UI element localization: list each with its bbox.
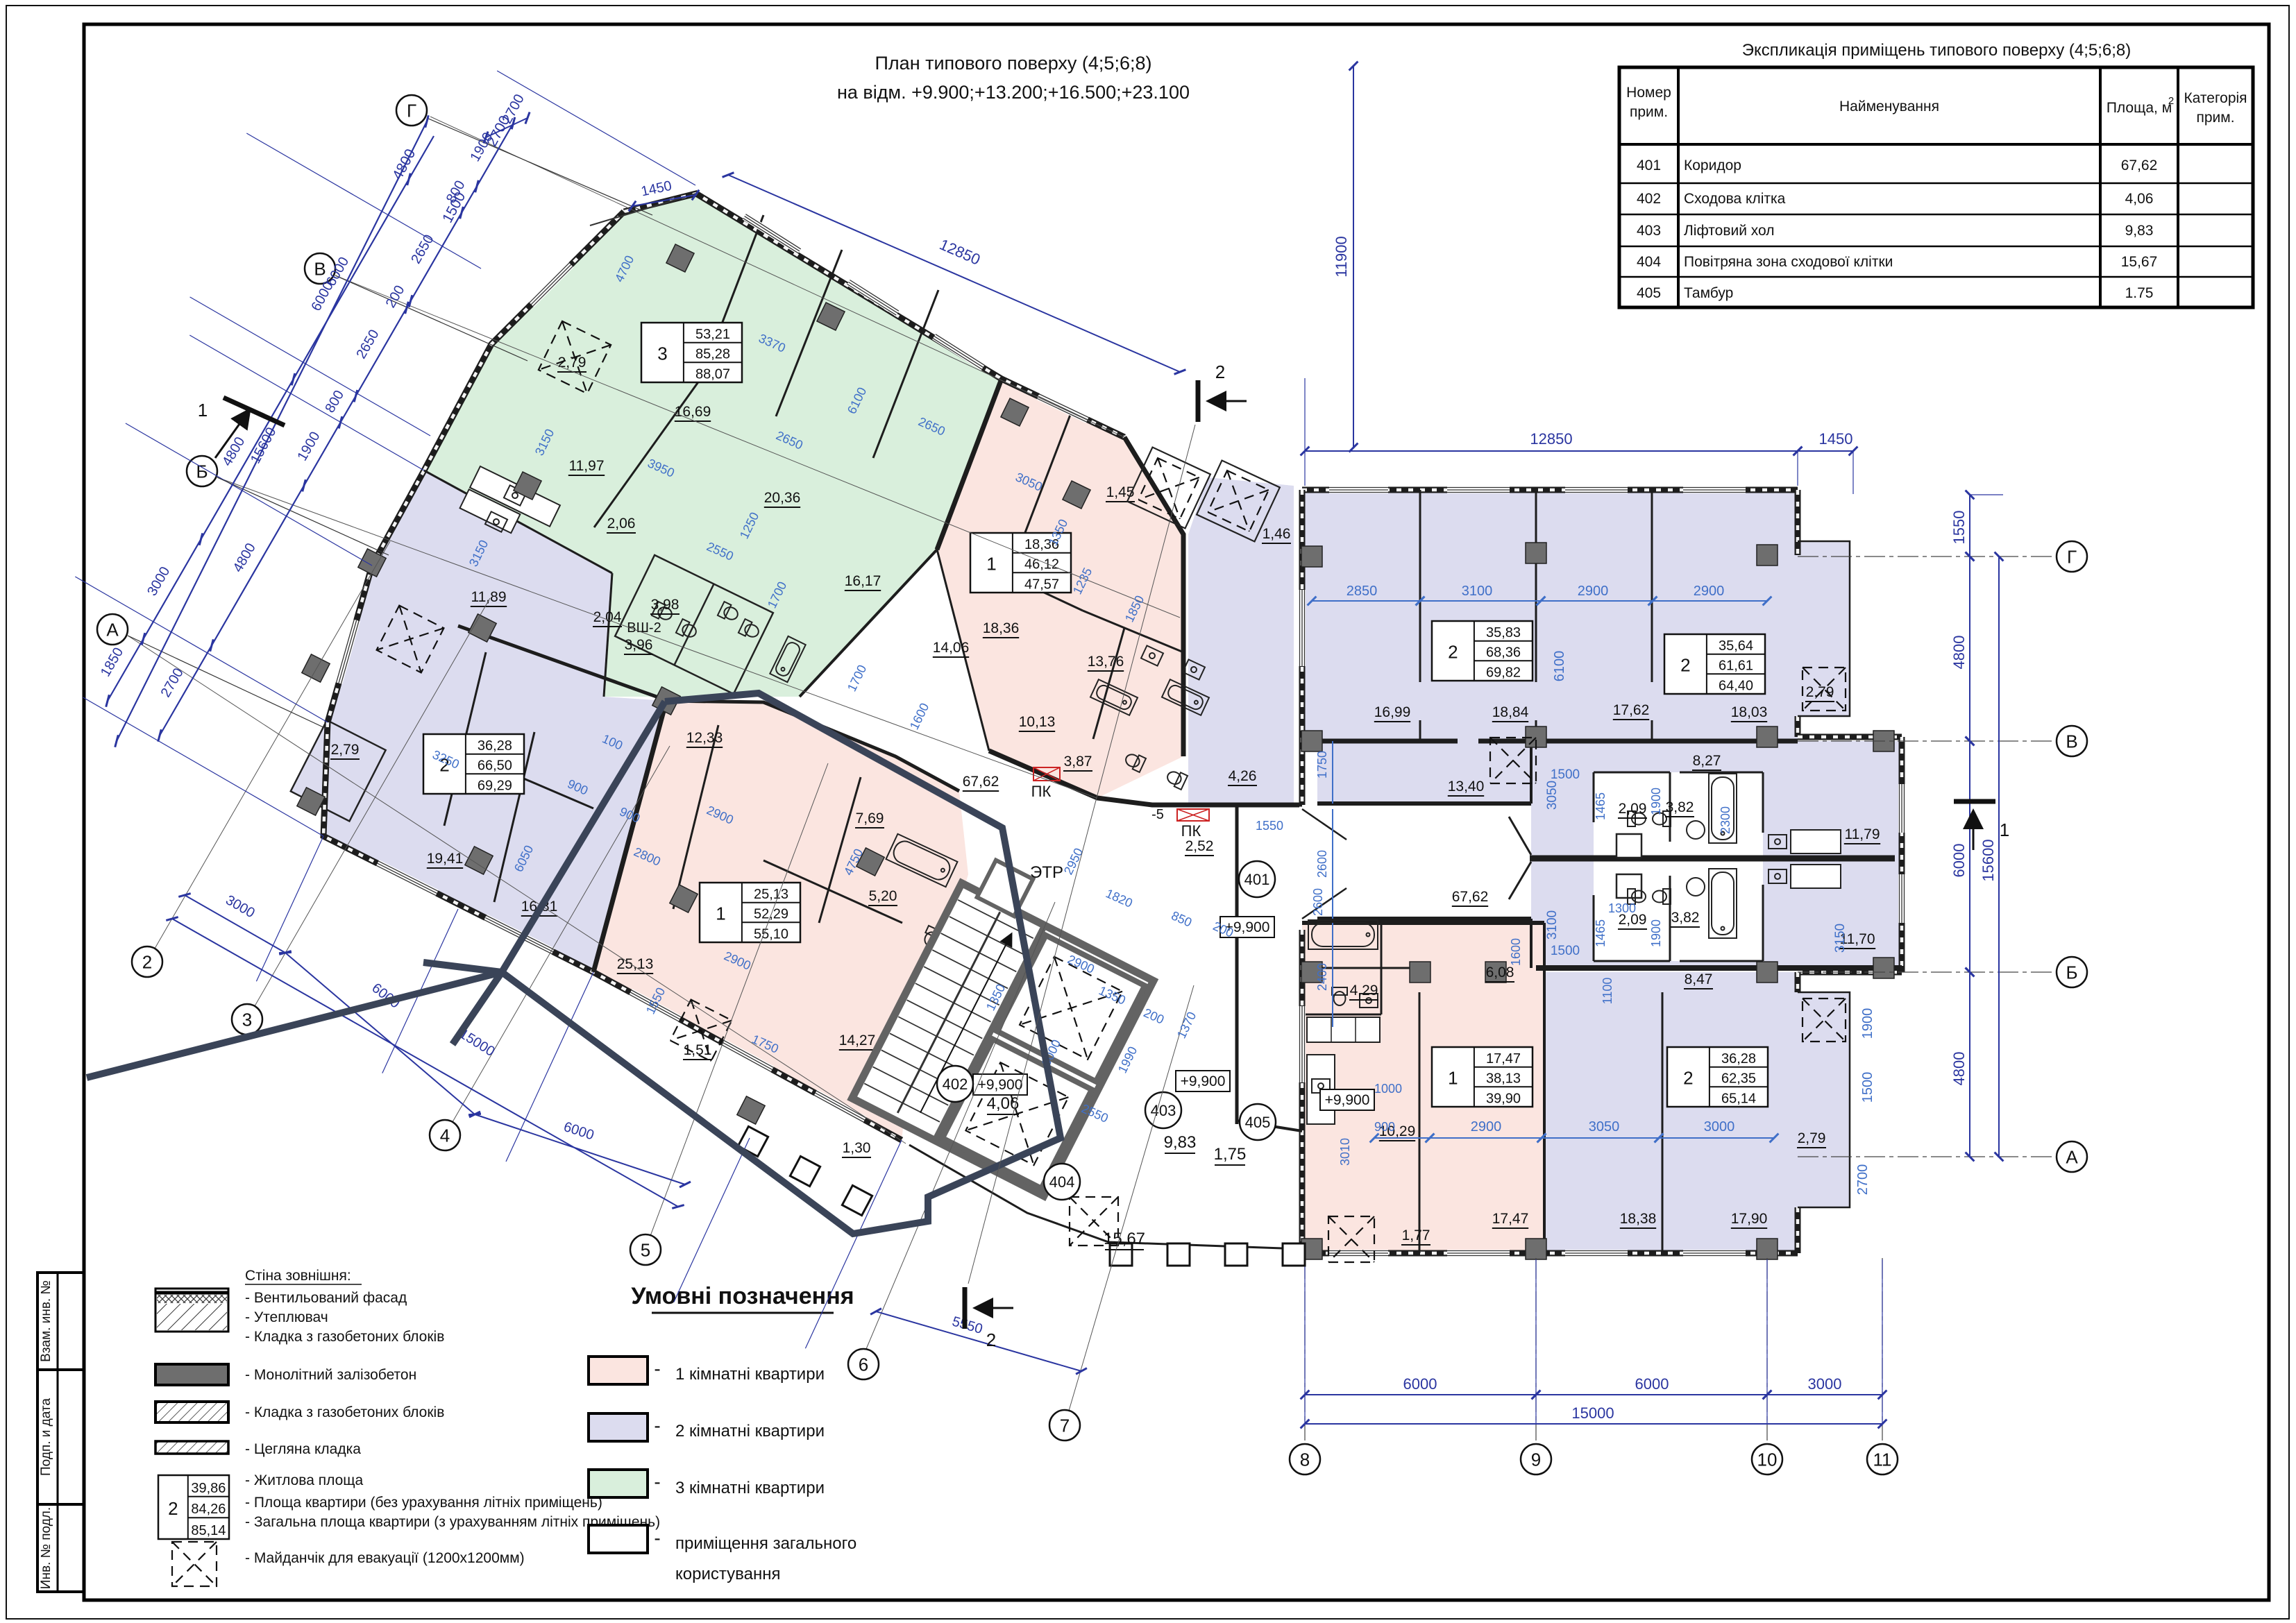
svg-text:61,61: 61,61 [1719, 658, 1753, 674]
svg-text:+9,900: +9,900 [1325, 1092, 1370, 1108]
svg-text:2,09: 2,09 [1619, 801, 1647, 817]
svg-text:2600: 2600 [1315, 850, 1329, 878]
svg-text:Номер: Номер [1626, 85, 1671, 101]
svg-text:Категорія: Категорія [2184, 90, 2247, 106]
svg-text:1550: 1550 [1256, 819, 1283, 833]
svg-text:17,90: 17,90 [1731, 1211, 1768, 1227]
svg-text:3000: 3000 [1704, 1119, 1735, 1135]
svg-text:4800: 4800 [1950, 1052, 1968, 1086]
svg-text:18,84: 18,84 [1492, 704, 1529, 720]
svg-text:Г: Г [407, 100, 416, 121]
svg-text:2900: 2900 [1471, 1119, 1502, 1135]
svg-text:А: А [2066, 1146, 2078, 1167]
svg-text:16,17: 16,17 [845, 573, 881, 589]
svg-text:4,26: 4,26 [1229, 768, 1257, 784]
svg-text:- Майданчік для евакуації (120: - Майданчік для евакуації (1200х1200мм) [245, 1550, 525, 1566]
svg-text:11,79: 11,79 [1845, 826, 1880, 842]
svg-text:11900: 11900 [1333, 236, 1350, 278]
svg-text:2: 2 [1448, 641, 1458, 662]
svg-text:18,03: 18,03 [1731, 704, 1768, 720]
svg-text:3,98: 3,98 [651, 597, 679, 613]
svg-text:1600: 1600 [1509, 938, 1523, 966]
svg-text:401: 401 [1244, 871, 1270, 888]
svg-text:35,83: 35,83 [1486, 625, 1521, 640]
svg-text:3100: 3100 [1545, 910, 1560, 940]
svg-text:9: 9 [1531, 1449, 1541, 1470]
svg-text:36,28: 36,28 [478, 738, 512, 754]
svg-text:Б: Б [2066, 962, 2077, 983]
svg-text:2,52: 2,52 [1185, 838, 1214, 854]
svg-text:900: 900 [1374, 1120, 1395, 1134]
svg-text:- Вентильований фасад: - Вентильований фасад [245, 1290, 407, 1306]
svg-text:2,79: 2,79 [558, 355, 586, 371]
svg-text:1500: 1500 [1551, 767, 1580, 782]
svg-text:3,82: 3,82 [1671, 910, 1700, 926]
svg-text:1300: 1300 [1608, 901, 1636, 915]
svg-text:6000: 6000 [1635, 1375, 1669, 1393]
svg-text:6100: 6100 [1552, 651, 1567, 682]
svg-text:12,33: 12,33 [686, 730, 723, 746]
svg-text:2900: 2900 [1578, 584, 1609, 599]
svg-text:1: 1 [716, 903, 725, 924]
svg-text:1500: 1500 [1551, 944, 1580, 958]
svg-text:69,29: 69,29 [478, 778, 512, 793]
svg-text:8,27: 8,27 [1693, 753, 1721, 769]
svg-text:36,28: 36,28 [1721, 1051, 1756, 1067]
svg-text:В: В [314, 258, 326, 279]
svg-text:2400: 2400 [1315, 963, 1329, 991]
svg-text:1500: 1500 [1860, 1072, 1875, 1103]
svg-text:3010: 3010 [1338, 1138, 1352, 1166]
svg-text:1465: 1465 [1594, 792, 1607, 820]
svg-text:7,69: 7,69 [856, 810, 884, 826]
svg-text:Умовні позначення: Умовні позначення [631, 1283, 854, 1309]
svg-text:404: 404 [1637, 254, 1661, 270]
svg-text:15600: 15600 [1980, 839, 1997, 881]
svg-text:1,45: 1,45 [1106, 484, 1135, 500]
svg-text:67,62: 67,62 [963, 774, 999, 790]
svg-text:402: 402 [943, 1076, 968, 1093]
svg-text:1,30: 1,30 [843, 1140, 871, 1156]
svg-text:62,35: 62,35 [1721, 1071, 1756, 1087]
svg-text:46,12: 46,12 [1024, 557, 1059, 572]
svg-text:Б: Б [196, 461, 208, 482]
svg-text:53,21: 53,21 [695, 327, 730, 342]
svg-text:2700: 2700 [1855, 1164, 1871, 1196]
svg-text:1: 1 [198, 400, 208, 420]
svg-text:403: 403 [1151, 1102, 1176, 1119]
svg-text:- Цегляна кладка: - Цегляна кладка [245, 1441, 361, 1457]
svg-text:405: 405 [1245, 1114, 1271, 1131]
svg-text:прим.: прим. [1630, 104, 1668, 120]
svg-text:3,82: 3,82 [1666, 799, 1694, 815]
svg-text:8,47: 8,47 [1685, 971, 1713, 987]
svg-text:на відм. +9.900;+13.200;+16.50: на відм. +9.900;+13.200;+16.500;+23.100 [837, 82, 1190, 103]
svg-text:3 кімнатні квартири: 3 кімнатні квартири [675, 1479, 825, 1497]
svg-text:1750: 1750 [1315, 751, 1329, 779]
svg-text:6000: 6000 [1950, 844, 1968, 878]
svg-text:6000: 6000 [1403, 1375, 1437, 1393]
svg-text:- Житлова площа: - Житлова площа [245, 1472, 364, 1488]
svg-text:ПК: ПК [1181, 822, 1201, 840]
svg-text:1465: 1465 [1594, 919, 1607, 947]
svg-text:Стіна зовнішня:: Стіна зовнішня: [245, 1268, 351, 1284]
svg-text:67,62: 67,62 [1452, 889, 1489, 905]
svg-text:3,87: 3,87 [1064, 754, 1092, 770]
svg-text:4,06: 4,06 [2125, 191, 2154, 207]
svg-text:2 кімнатні квартири: 2 кімнатні квартири [675, 1422, 825, 1441]
svg-text:ЭТР: ЭТР [1030, 863, 1063, 882]
svg-text:1100: 1100 [1601, 978, 1614, 1005]
svg-text:прим.: прим. [2196, 110, 2234, 126]
svg-text:10: 10 [1757, 1449, 1778, 1470]
svg-text:А: А [106, 619, 119, 640]
svg-text:Найменування: Найменування [1839, 99, 1939, 114]
svg-text:Тамбур: Тамбур [1684, 285, 1733, 301]
svg-text:2: 2 [1215, 362, 1225, 382]
svg-text:16,69: 16,69 [675, 404, 711, 420]
svg-text:приміщення загального: приміщення загального [675, 1534, 856, 1553]
svg-text:14,06: 14,06 [933, 640, 970, 656]
svg-text:2,79: 2,79 [331, 742, 360, 758]
svg-text:5: 5 [641, 1239, 650, 1260]
svg-text:1550: 1550 [1950, 511, 1968, 545]
svg-text:Площа, м: Площа, м [2107, 100, 2172, 116]
svg-text:68,36: 68,36 [1486, 645, 1521, 661]
svg-text:9,83: 9,83 [2125, 223, 2154, 239]
svg-text:88,07: 88,07 [695, 366, 730, 382]
svg-text:1,51: 1,51 [684, 1042, 712, 1058]
svg-text:Инв. № подл.: Инв. № подл. [39, 1507, 53, 1589]
svg-text:67,62: 67,62 [2121, 158, 2158, 173]
svg-text:2,04: 2,04 [593, 609, 622, 625]
svg-text:2: 2 [168, 1498, 178, 1519]
svg-text:17,62: 17,62 [1613, 702, 1650, 718]
svg-text:2300: 2300 [1719, 806, 1732, 834]
svg-text:1000: 1000 [1374, 1082, 1402, 1096]
svg-text:17,47: 17,47 [1492, 1211, 1529, 1227]
svg-text:3,96: 3,96 [625, 637, 653, 653]
svg-text:1900: 1900 [1860, 1008, 1875, 1039]
svg-text:9,83: 9,83 [1164, 1133, 1197, 1152]
svg-text:-: - [654, 1358, 660, 1379]
svg-text:2: 2 [986, 1329, 996, 1350]
svg-text:405: 405 [1637, 285, 1661, 301]
svg-text:401: 401 [1637, 158, 1661, 173]
svg-text:10,13: 10,13 [1019, 714, 1056, 730]
svg-text:3150: 3150 [1833, 924, 1848, 953]
svg-text:Подп. и дата: Подп. и дата [39, 1398, 53, 1476]
svg-text:64,40: 64,40 [1719, 678, 1753, 693]
svg-text:2850: 2850 [1347, 584, 1378, 599]
svg-text:4: 4 [440, 1125, 450, 1146]
svg-text:2: 2 [2168, 95, 2174, 107]
svg-text:2,79: 2,79 [1798, 1130, 1826, 1146]
svg-text:13,76: 13,76 [1088, 654, 1124, 670]
svg-text:1,46: 1,46 [1263, 526, 1291, 542]
svg-text:47,57: 47,57 [1024, 577, 1059, 592]
svg-text:1900: 1900 [1649, 919, 1663, 947]
svg-text:66,50: 66,50 [478, 758, 512, 774]
svg-text:2,06: 2,06 [607, 516, 636, 532]
svg-text:-: - [654, 1527, 660, 1549]
svg-text:Сходова клітка: Сходова клітка [1684, 191, 1786, 207]
svg-text:69,82: 69,82 [1486, 665, 1521, 680]
svg-text:3100: 3100 [1462, 584, 1493, 599]
svg-text:11,97: 11,97 [569, 458, 605, 474]
svg-text:1: 1 [1448, 1067, 1458, 1088]
svg-text:39,90: 39,90 [1486, 1091, 1521, 1106]
svg-text:85,28: 85,28 [695, 347, 730, 362]
svg-text:55,10: 55,10 [754, 926, 788, 942]
svg-text:15000: 15000 [1571, 1404, 1614, 1422]
svg-text:План типового поверху (4;5;6;8: План типового поверху (4;5;6;8) [875, 53, 1152, 74]
svg-text:11: 11 [1873, 1449, 1892, 1470]
svg-text:20,36: 20,36 [764, 490, 801, 506]
svg-text:6: 6 [859, 1354, 868, 1375]
svg-text:- Утеплювач: - Утеплювач [245, 1309, 328, 1325]
svg-text:Повітряна зона сходової клітки: Повітряна зона сходової клітки [1684, 254, 1893, 270]
svg-text:18,36: 18,36 [983, 620, 1020, 636]
svg-text:1900: 1900 [1649, 788, 1663, 815]
svg-text:ПК: ПК [1031, 783, 1052, 800]
svg-text:84,26: 84,26 [191, 1502, 226, 1517]
svg-text:Взам. инв. №: Взам. инв. № [39, 1280, 53, 1362]
svg-text:2: 2 [1683, 1067, 1693, 1088]
svg-text:+9,900: +9,900 [978, 1077, 1023, 1093]
svg-text:15,67: 15,67 [2121, 254, 2158, 270]
svg-text:38,13: 38,13 [1486, 1071, 1521, 1087]
svg-text:11,89: 11,89 [471, 589, 507, 605]
svg-text:17,47: 17,47 [1486, 1051, 1521, 1067]
svg-text:85,14: 85,14 [191, 1523, 226, 1538]
svg-text:3: 3 [657, 343, 667, 364]
svg-text:3050: 3050 [1545, 781, 1560, 810]
svg-text:-: - [654, 1415, 660, 1436]
svg-text:12850: 12850 [1530, 430, 1572, 448]
svg-text:2900: 2900 [1694, 584, 1725, 599]
svg-text:3000: 3000 [1808, 1375, 1842, 1393]
svg-text:16,99: 16,99 [1374, 704, 1411, 720]
svg-text:18,38: 18,38 [1620, 1211, 1657, 1227]
svg-text:35,64: 35,64 [1719, 638, 1753, 654]
svg-text:- Площа квартири (без урахуван: - Площа квартири (без урахування літніх … [245, 1495, 602, 1511]
svg-text:15,67: 15,67 [1104, 1230, 1145, 1248]
svg-text:403: 403 [1637, 223, 1661, 239]
svg-text:1450: 1450 [1819, 430, 1853, 448]
svg-text:+9,900: +9,900 [1181, 1073, 1226, 1089]
svg-text:14,27: 14,27 [839, 1033, 876, 1048]
svg-text:-5: -5 [1151, 807, 1164, 822]
svg-text:25,13: 25,13 [754, 887, 788, 902]
svg-text:1,77: 1,77 [1402, 1227, 1430, 1243]
svg-text:1 кімнатні квартири: 1 кімнатні квартири [675, 1365, 825, 1384]
svg-text:65,14: 65,14 [1721, 1091, 1756, 1106]
svg-text:3: 3 [242, 1009, 252, 1030]
svg-text:1.75: 1.75 [2125, 285, 2154, 301]
svg-text:2,79: 2,79 [1806, 684, 1834, 700]
svg-text:1,75: 1,75 [1214, 1145, 1247, 1164]
svg-text:- Кладка з газобетоних блоків: - Кладка з газобетоних блоків [245, 1329, 444, 1345]
svg-text:Ліфтовий хол: Ліфтовий хол [1684, 223, 1775, 239]
svg-text:404: 404 [1049, 1173, 1075, 1191]
svg-text:- Кладка з газобетоних блоків: - Кладка з газобетоних блоків [245, 1404, 444, 1420]
svg-text:39,86: 39,86 [191, 1481, 226, 1496]
svg-text:4800: 4800 [1950, 636, 1968, 670]
svg-text:1: 1 [986, 553, 996, 574]
svg-text:Экспликація приміщень типового: Экспликація приміщень типового поверху (… [1742, 41, 2131, 60]
svg-text:Г: Г [2067, 546, 2077, 567]
svg-text:користування: користування [675, 1565, 780, 1583]
svg-text:13,40: 13,40 [1448, 779, 1485, 794]
svg-text:2: 2 [1680, 654, 1690, 675]
svg-text:2600: 2600 [1311, 888, 1325, 916]
svg-text:Коридор: Коридор [1684, 158, 1741, 173]
svg-text:4,29: 4,29 [1350, 983, 1378, 999]
svg-text:7: 7 [1060, 1415, 1070, 1436]
svg-text:6,08: 6,08 [1486, 965, 1514, 980]
svg-text:19,41: 19,41 [427, 851, 464, 867]
svg-text:2: 2 [142, 951, 152, 972]
svg-text:- Монолітний залізобетон: - Монолітний залізобетон [245, 1367, 416, 1383]
svg-text:402: 402 [1637, 191, 1661, 207]
svg-text:1: 1 [2000, 819, 2009, 840]
svg-text:3050: 3050 [1589, 1119, 1620, 1135]
svg-text:В: В [2066, 731, 2077, 751]
svg-text:8: 8 [1300, 1449, 1310, 1470]
svg-text:-: - [654, 1471, 660, 1493]
svg-text:5,20: 5,20 [869, 888, 897, 904]
